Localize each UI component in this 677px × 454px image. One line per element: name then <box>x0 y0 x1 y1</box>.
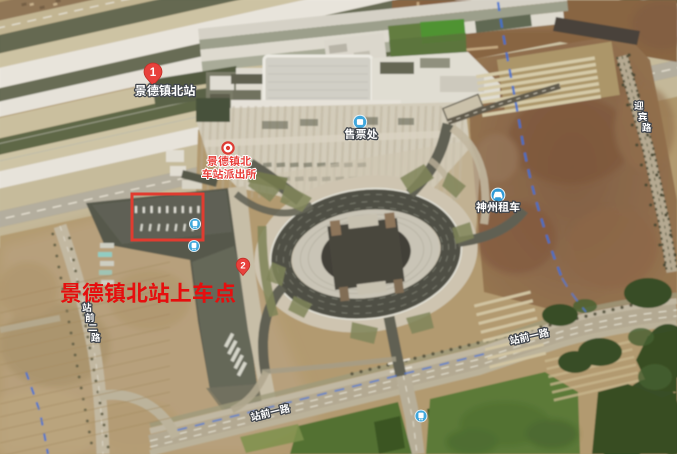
svg-text:车站派出所: 车站派出所 <box>202 166 257 182</box>
svg-text:售票处: 售票处 <box>345 126 378 142</box>
svg-text:路: 路 <box>91 330 101 344</box>
svg-text:路: 路 <box>642 120 652 134</box>
svg-text:2: 2 <box>240 260 245 271</box>
svg-text:神州租车: 神州租车 <box>476 199 520 215</box>
svg-text:景德镇北站: 景德镇北站 <box>135 81 197 99</box>
svg-text:1: 1 <box>150 67 157 79</box>
